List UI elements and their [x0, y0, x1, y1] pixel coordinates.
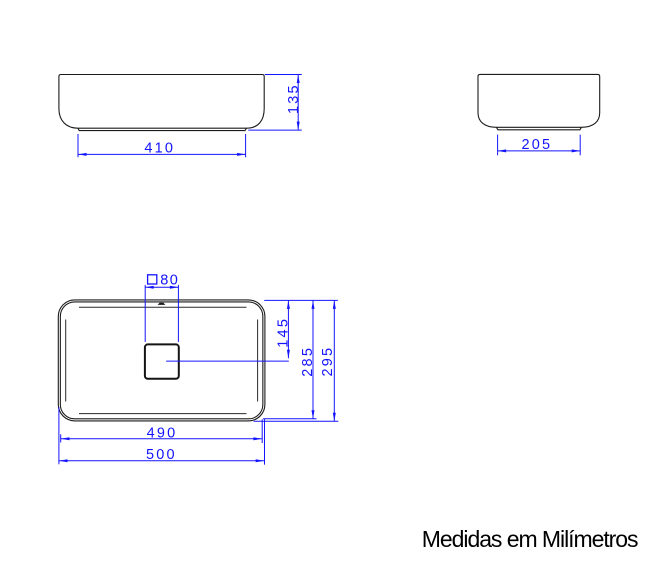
- svg-text:205: 205: [522, 137, 553, 153]
- svg-text:295: 295: [320, 346, 336, 377]
- svg-text:500: 500: [146, 447, 177, 463]
- svg-text:80: 80: [160, 272, 179, 288]
- svg-text:145: 145: [276, 317, 292, 348]
- svg-text:285: 285: [300, 346, 316, 377]
- svg-text:410: 410: [144, 140, 175, 156]
- svg-text:490: 490: [147, 425, 178, 441]
- svg-text:Medidas em Milímetros: Medidas em Milímetros: [422, 526, 638, 552]
- svg-text:135: 135: [286, 83, 302, 114]
